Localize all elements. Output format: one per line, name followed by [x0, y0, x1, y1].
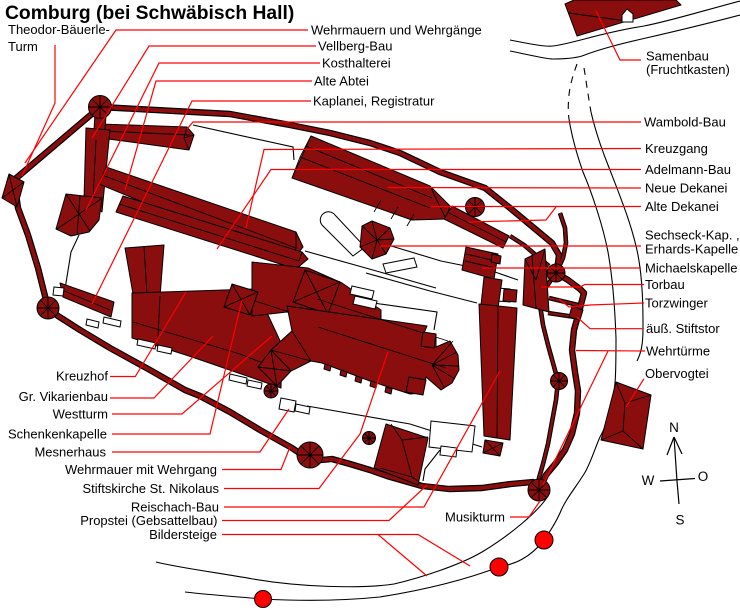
svg-text:(Fruchtkasten): (Fruchtkasten): [646, 62, 730, 77]
svg-text:Comburg (bei Schwäbisch Hall): Comburg (bei Schwäbisch Hall): [5, 3, 294, 24]
svg-text:Obervogtei: Obervogtei: [645, 366, 709, 381]
svg-text:Propstei (Gebsattelbau): Propstei (Gebsattelbau): [80, 513, 217, 528]
svg-text:Neue Dekanei: Neue Dekanei: [645, 181, 727, 196]
svg-text:Stiftskirche St. Nikolaus: Stiftskirche St. Nikolaus: [82, 481, 219, 496]
svg-text:Bildersteige: Bildersteige: [149, 527, 217, 542]
svg-text:Westturm: Westturm: [53, 407, 108, 422]
svg-text:O: O: [698, 469, 709, 484]
svg-text:Adelmann-Bau: Adelmann-Bau: [645, 162, 731, 177]
svg-text:Kaplanei, Registratur: Kaplanei, Registratur: [313, 94, 435, 109]
svg-text:Torzwinger: Torzwinger: [645, 296, 709, 311]
svg-text:N: N: [669, 420, 679, 435]
svg-text:äuß. Stiftstor: äuß. Stiftstor: [646, 321, 720, 336]
svg-text:Sechseck-Kap. ,: Sechseck-Kap. ,: [645, 228, 740, 243]
svg-text:Theodor-Bäuerle-: Theodor-Bäuerle-: [8, 22, 110, 37]
svg-text:W: W: [642, 473, 655, 488]
svg-text:Wehrmauer mit Wehrgang: Wehrmauer mit Wehrgang: [65, 462, 217, 477]
svg-text:Vellberg-Bau: Vellberg-Bau: [318, 39, 392, 54]
svg-text:Alte Abtei: Alte Abtei: [314, 74, 369, 89]
svg-text:Erhards-Kapelle: Erhards-Kapelle: [645, 242, 738, 257]
svg-text:Alte Dekanei: Alte Dekanei: [645, 199, 719, 214]
svg-text:Gr. Vikarienbau: Gr. Vikarienbau: [19, 389, 108, 404]
svg-text:Kosthalterei: Kosthalterei: [322, 56, 391, 71]
svg-text:Mesnerhaus: Mesnerhaus: [34, 445, 106, 460]
svg-text:Musikturm: Musikturm: [445, 510, 505, 525]
svg-text:Torbau: Torbau: [645, 277, 685, 292]
svg-text:Wambold-Bau: Wambold-Bau: [644, 115, 726, 130]
svg-text:Kreuzhof: Kreuzhof: [56, 369, 108, 384]
svg-text:Kreuzgang: Kreuzgang: [645, 141, 708, 156]
svg-text:Michaelskapelle: Michaelskapelle: [645, 261, 738, 276]
svg-text:Schenkenkapelle: Schenkenkapelle: [8, 427, 107, 442]
svg-text:S: S: [675, 513, 684, 528]
svg-text:Turm: Turm: [8, 39, 38, 54]
svg-text:Wehrtürme: Wehrtürme: [646, 344, 710, 359]
svg-text:Wehrmauern und Wehrgänge: Wehrmauern und Wehrgänge: [311, 23, 482, 38]
